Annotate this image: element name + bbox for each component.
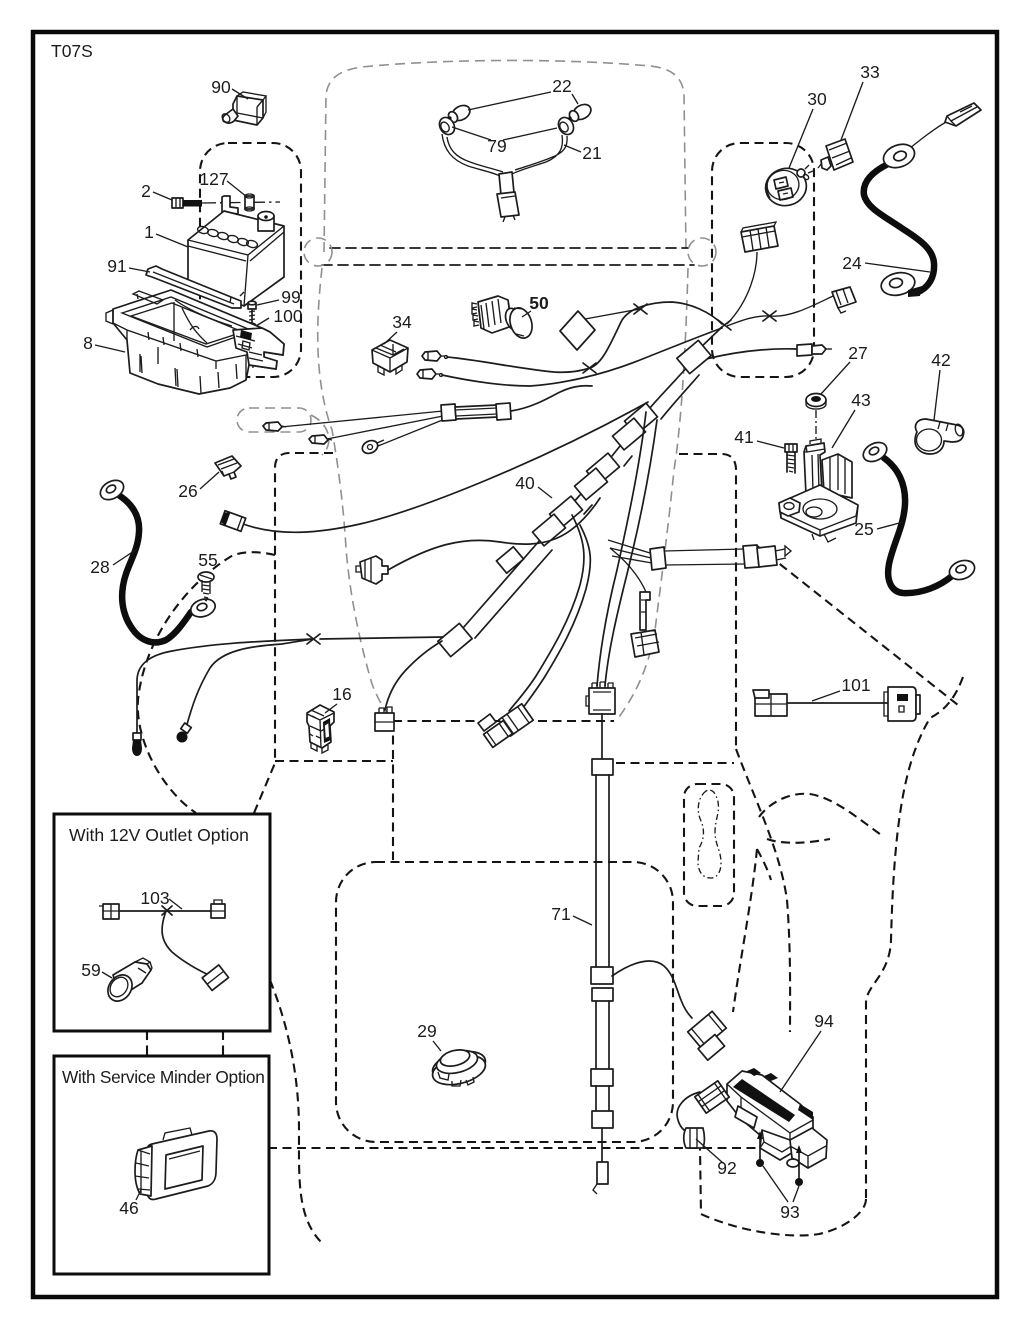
svg-text:24: 24 — [842, 253, 862, 273]
svg-text:With 12V Outlet Option: With 12V Outlet Option — [69, 825, 249, 845]
svg-text:1: 1 — [144, 222, 154, 242]
svg-text:99: 99 — [281, 287, 300, 307]
svg-text:34: 34 — [392, 312, 412, 332]
svg-text:100: 100 — [273, 306, 302, 326]
svg-text:22: 22 — [552, 76, 571, 96]
svg-text:41: 41 — [734, 427, 753, 447]
svg-text:103: 103 — [140, 888, 169, 908]
svg-text:43: 43 — [851, 390, 870, 410]
svg-text:With Service Minder Option: With Service Minder Option — [62, 1067, 265, 1087]
svg-text:93: 93 — [780, 1202, 799, 1222]
svg-text:T07S: T07S — [51, 41, 93, 61]
svg-text:21: 21 — [582, 143, 601, 163]
svg-text:127: 127 — [199, 169, 228, 189]
svg-text:29: 29 — [417, 1021, 436, 1041]
svg-text:2: 2 — [141, 181, 151, 201]
svg-text:101: 101 — [841, 675, 870, 695]
svg-text:42: 42 — [931, 350, 950, 370]
svg-text:94: 94 — [814, 1011, 834, 1031]
svg-text:55: 55 — [198, 550, 217, 570]
svg-text:8: 8 — [83, 333, 93, 353]
svg-text:91: 91 — [107, 256, 126, 276]
svg-text:59: 59 — [81, 960, 100, 980]
svg-text:79: 79 — [487, 136, 506, 156]
svg-text:30: 30 — [807, 89, 827, 109]
svg-text:25: 25 — [854, 519, 873, 539]
svg-text:28: 28 — [90, 557, 109, 577]
svg-text:16: 16 — [332, 684, 351, 704]
svg-text:50: 50 — [529, 293, 549, 313]
svg-text:90: 90 — [211, 77, 231, 97]
svg-text:40: 40 — [515, 473, 535, 493]
svg-text:71: 71 — [551, 904, 570, 924]
svg-text:27: 27 — [848, 343, 867, 363]
svg-text:33: 33 — [860, 62, 879, 82]
svg-text:46: 46 — [119, 1198, 138, 1218]
svg-text:26: 26 — [178, 481, 197, 501]
